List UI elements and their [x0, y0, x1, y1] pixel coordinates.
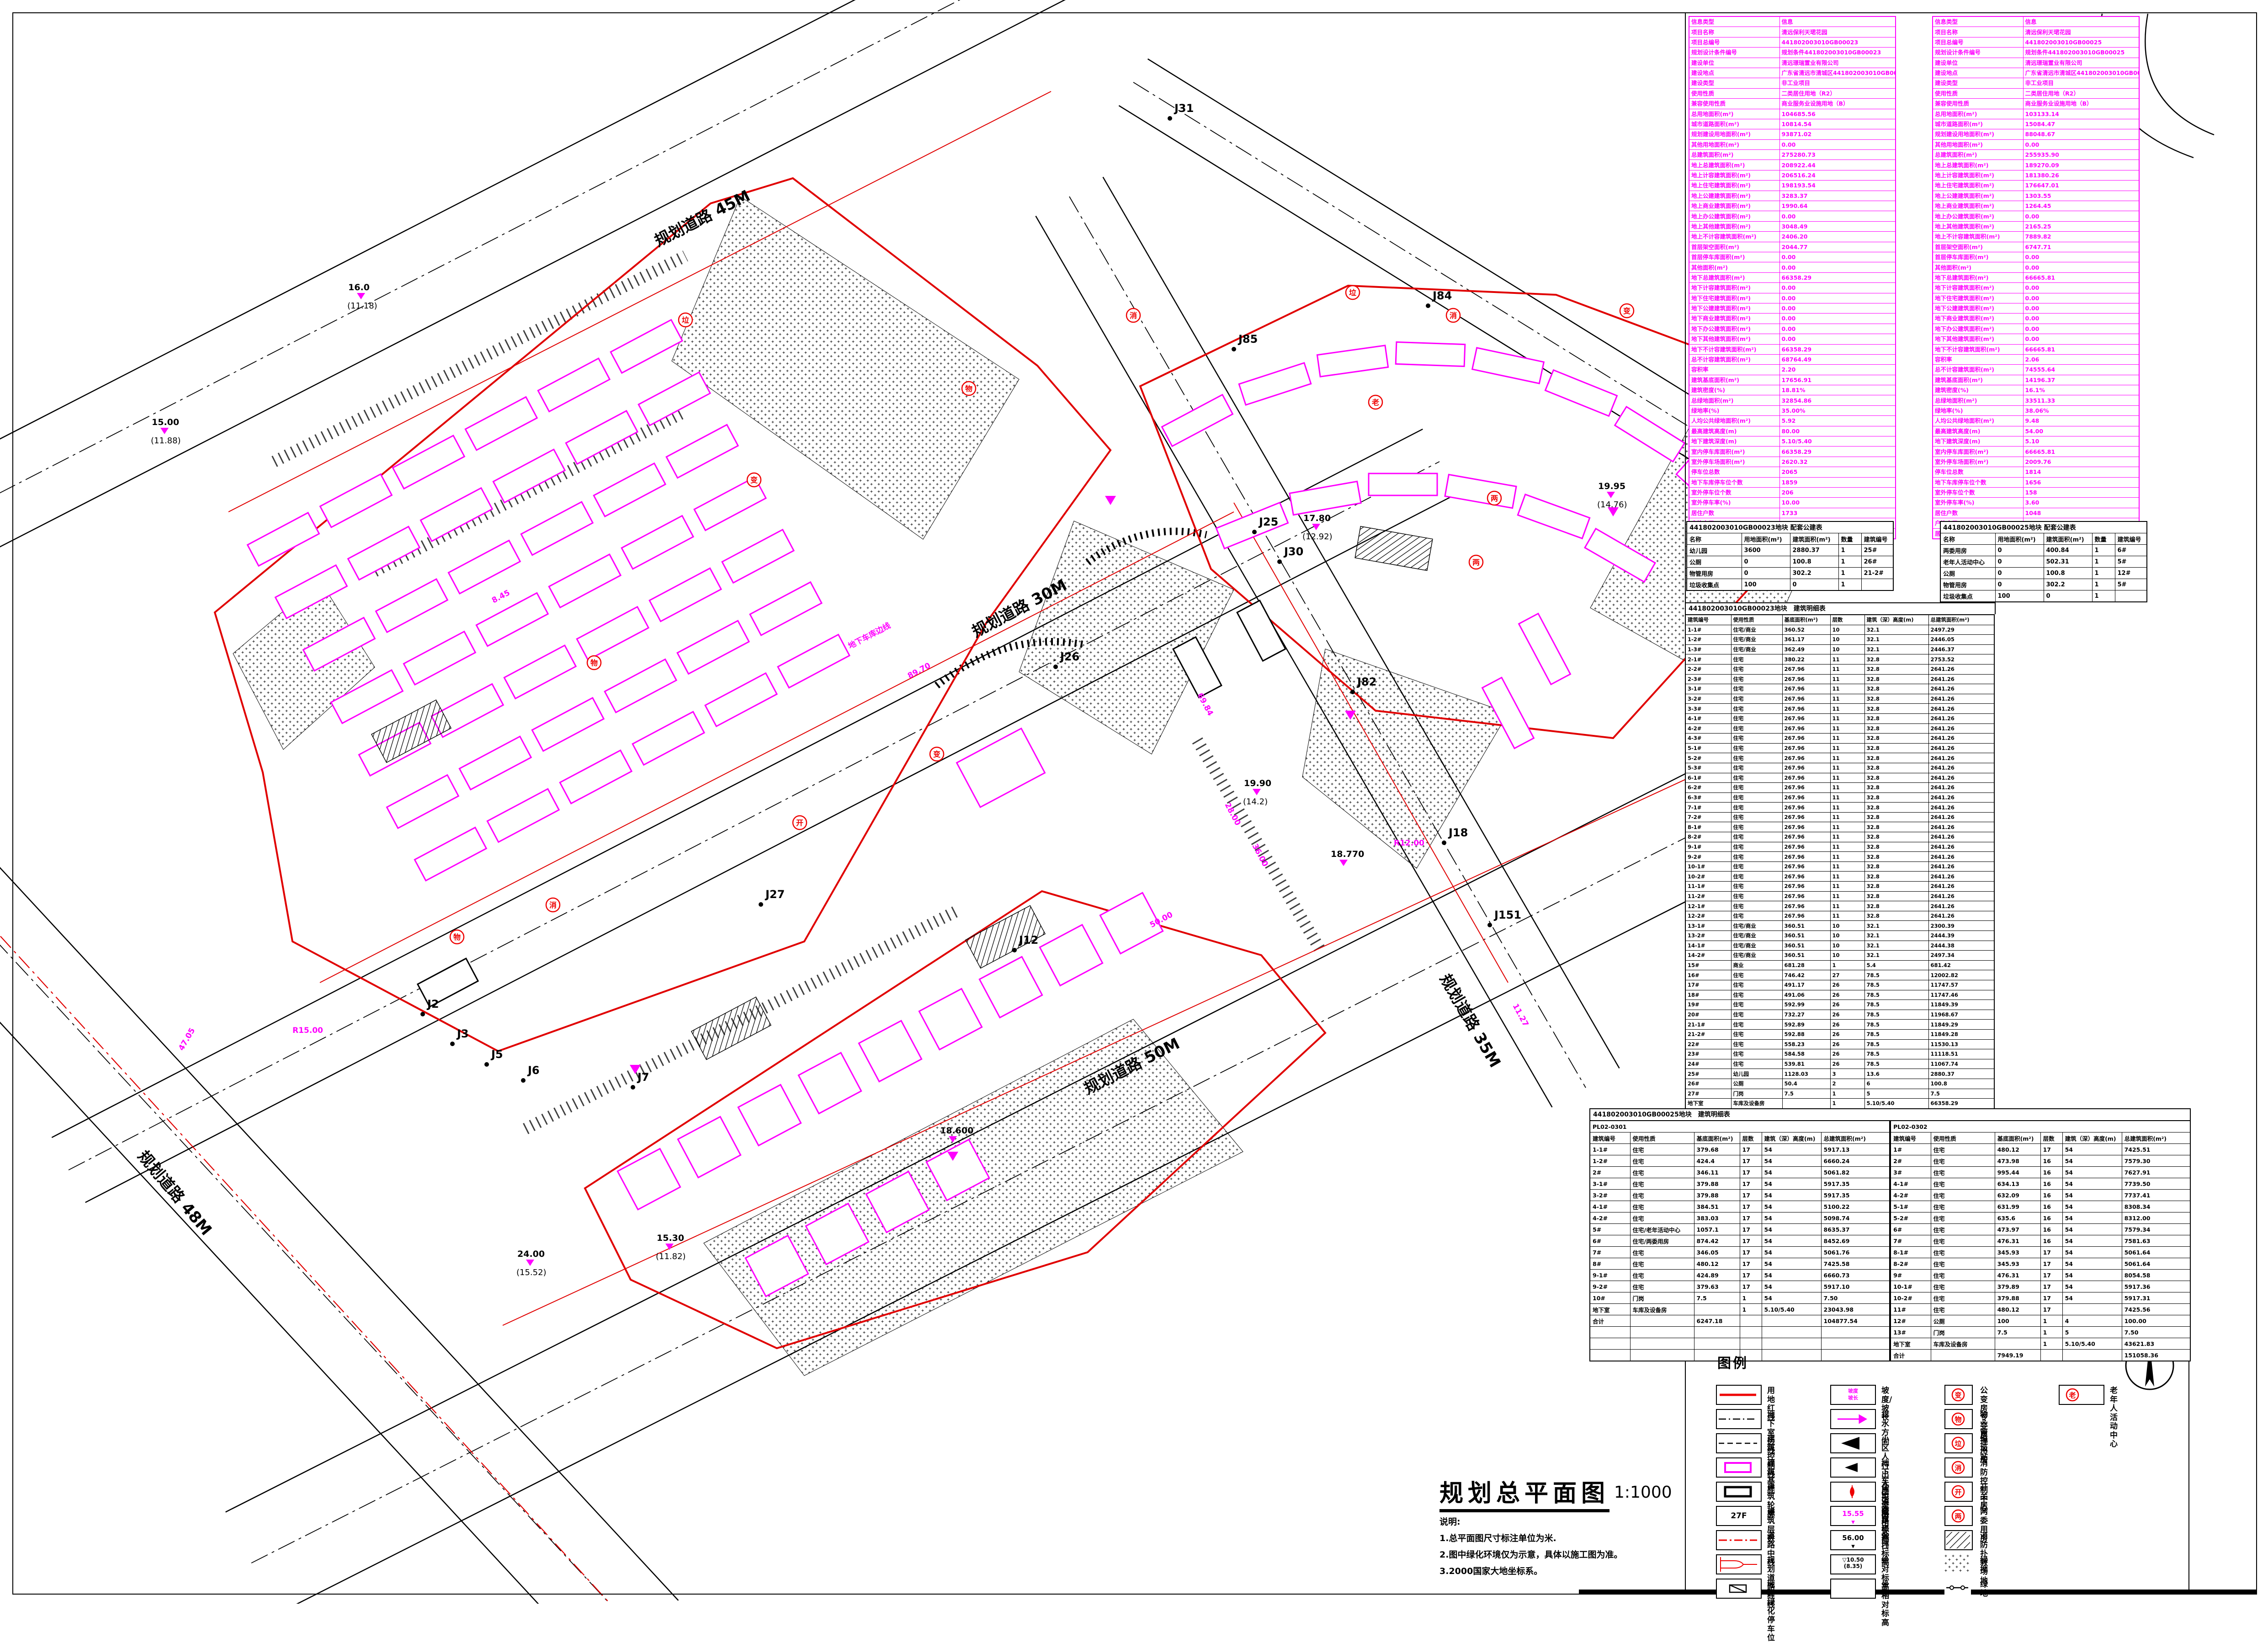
elevation-value: 19.90: [1244, 778, 1271, 788]
table-cell: 592.88: [1782, 1029, 1830, 1039]
legend-circ-icon: 变: [1944, 1385, 1973, 1405]
table-cell: 2165.25: [2023, 221, 2139, 231]
junction-label: J12: [1018, 934, 1038, 946]
table-cell: 2620.32: [1779, 457, 1896, 467]
dimension-label: R15.00: [292, 1026, 323, 1035]
table-cell: 54: [2062, 1224, 2122, 1235]
legend-m-rect-icon: [1716, 1457, 1762, 1478]
table-row: 2-1#住宅380.221132.82753.52: [1685, 654, 1994, 665]
table-row: 地下建筑深度(m)5.10: [1933, 436, 2139, 447]
table-cell: 267.96: [1782, 842, 1830, 852]
green-area: [1302, 649, 1508, 868]
building-footprint: [1472, 348, 1544, 383]
building-footprint: [677, 621, 749, 674]
table-cell: 0: [1995, 556, 2044, 568]
table-cell: 360.51: [1782, 931, 1830, 941]
table-cell: 车库及设备房: [1630, 1304, 1694, 1315]
table-cell: 54: [1762, 1167, 1821, 1178]
table-cell: 地上公建建筑面积(m²): [1689, 191, 1779, 201]
table-cell: 8452.69: [1821, 1235, 1890, 1247]
table-cell: 总绿地面积(m²): [1933, 395, 2023, 405]
table-cell: 7.5: [1694, 1292, 1740, 1304]
table-cell: 住宅/商业: [1731, 644, 1782, 654]
table-cell: 居住户数: [1689, 508, 1779, 518]
table-cell: 267.96: [1782, 832, 1830, 842]
table-cell: 1: [1838, 545, 1861, 556]
table-cell: 66358.29: [1779, 272, 1896, 282]
table-cell: 54: [1762, 1292, 1821, 1304]
legend: 图例 用地红线地下室边线建筑控制线建筑基底建筑轮廓27F建筑层数道路中线规划道路…: [1709, 1352, 2184, 1590]
table-cell: 54: [1762, 1224, 1821, 1235]
table-cell: 2641.26: [1928, 753, 1994, 763]
table-cell: 473.97: [1995, 1224, 2040, 1235]
table-cell: 32.1: [1864, 931, 1928, 941]
table-cell: 17: [1740, 1155, 1762, 1167]
table-cell: 5917.31: [2122, 1292, 2190, 1304]
table-row: 4-2#住宅383.0317545098.74: [1590, 1212, 1890, 1224]
table-cell: 住宅: [1731, 664, 1782, 674]
table-cell: 建筑基底面积(m²): [1689, 375, 1779, 385]
building-footprint: [248, 513, 319, 566]
table-cell: 2641.26: [1928, 901, 1994, 911]
table-cell: 13-1#: [1685, 921, 1731, 931]
table-cell: 8635.37: [1821, 1224, 1890, 1235]
table-cell: 0: [2044, 590, 2092, 602]
table-cell: 0: [1742, 568, 1790, 579]
table-cell: 住宅: [1931, 1247, 1995, 1258]
table-cell: 建设地点: [1933, 68, 2023, 78]
table-cell: 0: [1790, 579, 1838, 591]
table-cell: 物管用房: [1687, 568, 1742, 579]
table-cell: 建筑编号: [1590, 1133, 1630, 1144]
table-cell: 5061.64: [2122, 1258, 2190, 1270]
table-row: 2#住宅473.9816547579.30: [1891, 1155, 2190, 1167]
table-cell: 0.00: [1779, 293, 1896, 303]
table-cell: 32.8: [1864, 783, 1928, 793]
table-row: 4-1#住宅267.961132.82641.26: [1685, 713, 1994, 723]
table-row: 24#住宅539.812678.511067.74: [1685, 1059, 1994, 1069]
table-row: 3-1#住宅379.8817545917.35: [1590, 1178, 1890, 1190]
elevation-sub-value: (11.82): [656, 1252, 686, 1261]
table-cell: 10: [1830, 644, 1864, 654]
elevation-value: 18.600: [940, 1126, 973, 1136]
table-row: 建筑编号使用性质基底面积(m²)层数建筑（深）高度(m)总建筑面积(m²): [1891, 1133, 2190, 1144]
table-cell: 16: [2040, 1155, 2062, 1167]
table-cell: 11: [1830, 882, 1864, 892]
table-cell: 208922.44: [1779, 160, 1896, 170]
table-cell: 11: [1830, 713, 1864, 723]
table-cell: 2641.26: [1928, 792, 1994, 803]
table-cell: 地上公建建筑面积(m²): [1933, 191, 2023, 201]
table-cell: 绿地率(%): [1689, 405, 1779, 415]
table-cell: 0.00: [2023, 211, 2139, 221]
table-cell: 6#: [2115, 545, 2147, 556]
table-cell: 5.10/5.40: [1864, 1099, 1928, 1109]
table-cell: 379.63: [1694, 1281, 1740, 1292]
table-cell: 住宅: [1931, 1292, 1995, 1304]
table-cell: 54: [1762, 1155, 1821, 1167]
svg-text:开: 开: [1955, 1488, 1961, 1496]
table-cell: 7.5: [1782, 1089, 1830, 1099]
table-row: 地上办公建筑面积(m²)0.00: [1689, 211, 1896, 221]
elevation-marker-icon: [1339, 860, 1348, 866]
table-cell: 16: [2040, 1167, 2062, 1178]
table-row: 室外停车率(%)3.60: [1933, 498, 2139, 508]
table-cell: 10-1#: [1685, 861, 1731, 872]
table-cell: 17: [1740, 1247, 1762, 1258]
table-cell: 0.00: [1779, 314, 1896, 324]
table-cell: 用地面积(m²): [1995, 533, 2044, 545]
table-cell: 32.8: [1864, 753, 1928, 763]
table-cell: 住宅: [1931, 1212, 1995, 1224]
table-cell: 10: [1830, 951, 1864, 961]
table-cell: 66358.29: [1779, 344, 1896, 354]
svg-text:变: 变: [1623, 307, 1631, 315]
elevation-marker-icon: [1253, 789, 1261, 795]
table-cell: 7.50: [2122, 1327, 2190, 1338]
table-row: 总用地面积(m²)104685.56: [1689, 109, 1896, 119]
table-cell: 32.8: [1864, 861, 1928, 872]
table-cell: 12-2#: [1685, 911, 1731, 921]
table-cell: 1-1#: [1590, 1144, 1630, 1155]
table-cell: 地下住宅建筑面积(m²): [1689, 293, 1779, 303]
table-cell: 10-2#: [1891, 1292, 1931, 1304]
table-cell: 13#: [1891, 1327, 1931, 1338]
table-cell: 地下室: [1590, 1304, 1630, 1315]
table-cell: 停车位总数: [1689, 467, 1779, 477]
table-cell: 住宅: [1731, 882, 1782, 892]
table-cell: 10#: [1590, 1292, 1630, 1304]
table-cell: 26: [1830, 1000, 1864, 1010]
legend-circ-icon: 物: [1944, 1409, 1973, 1429]
table-cell: 室外停车位个数: [1933, 487, 2023, 497]
table-cell: 信息类型: [1933, 16, 2023, 27]
legend-line-dots-icon: [1944, 1579, 1971, 1597]
table-cell: 0.00: [1779, 334, 1896, 344]
table-cell: 181380.26: [2023, 170, 2139, 180]
table-cell: 5.10/5.40: [1762, 1304, 1821, 1315]
table-cell: 2.06: [2023, 354, 2139, 364]
table-row: 441802003010GB00025地块 配套公建表: [1940, 521, 2147, 533]
table-cell: 住宅: [1731, 713, 1782, 723]
table-cell: 17: [1740, 1212, 1762, 1224]
building-footprint: [1519, 614, 1571, 685]
table-row: 5-1#住宅631.9916548308.34: [1891, 1201, 2190, 1212]
legend-label: 坐标: [1881, 1580, 1889, 1598]
table-cell: 住宅: [1731, 1000, 1782, 1010]
table-cell: 635.6: [1995, 1212, 2040, 1224]
table-cell: 2300.39: [1928, 921, 1994, 931]
elevation-sub-value: (14.2): [1243, 797, 1268, 807]
table-cell: 基底面积(m²): [1995, 1133, 2040, 1144]
table-cell: 1: [2040, 1315, 2062, 1327]
table-cell: 人均公共绿地面积(m²): [1689, 416, 1779, 426]
table-cell: 总建筑面积(m²): [1933, 150, 2023, 160]
table-cell: 住宅: [1731, 654, 1782, 665]
table-cell: 26: [1830, 990, 1864, 1000]
table-cell: 32.1: [1864, 921, 1928, 931]
table-cell: 5917.36: [2122, 1281, 2190, 1292]
table-cell: 3-1#: [1685, 684, 1731, 694]
dimension-label: 89.70: [906, 661, 932, 681]
building-footprint: [611, 320, 682, 373]
table-cell: 住宅: [1931, 1178, 1995, 1190]
table-cell: 2641.26: [1928, 842, 1994, 852]
table-cell: 建设单位: [1689, 58, 1779, 68]
table-cell: 2641.26: [1928, 872, 1994, 882]
table-cell: 住宅: [1630, 1201, 1694, 1212]
junction-label: J7: [637, 1071, 649, 1084]
table-row: 地下住宅建筑面积(m²)0.00: [1933, 293, 2139, 303]
table-row: 12-2#住宅267.961132.82641.26: [1685, 911, 1994, 921]
fire-rescue-area: [691, 997, 771, 1060]
table-cell: 名称: [1687, 533, 1742, 545]
building-footprint: [1317, 346, 1388, 377]
legend-abs-rel-icon: ▽10.50(8.35): [1830, 1554, 1876, 1574]
table-cell: 住宅: [1931, 1190, 1995, 1201]
table-cell: 建筑面积(m²): [1790, 533, 1838, 545]
building-footprint: [521, 502, 593, 555]
table-cell: 总建筑面积(m²): [1821, 1133, 1890, 1144]
legend-parking-icon: [1716, 1579, 1762, 1599]
table-cell: 80.00: [1779, 426, 1896, 436]
table-cell: 78.5: [1864, 990, 1928, 1000]
table-row: 13-2#住宅/商业360.511032.12444.39: [1685, 931, 1994, 941]
table-row: 23#住宅584.582678.511118.51: [1685, 1049, 1994, 1059]
table-cell: 住宅: [1931, 1224, 1995, 1235]
table-cell: 74555.64: [2023, 365, 2139, 375]
table-cell: 总不计容建筑面积(m²): [1689, 354, 1779, 364]
table-cell: 住宅/商业: [1731, 951, 1782, 961]
table-cell: 8-2#: [1891, 1258, 1931, 1270]
table-row: 9-1#住宅424.8917546660.73: [1590, 1270, 1890, 1281]
table-cell: 54: [2062, 1144, 2122, 1155]
table-cell: 基底面积(m²): [1694, 1133, 1740, 1144]
table-cell: 5061.82: [1821, 1167, 1890, 1178]
table-row: 合计6247.18104877.54: [1590, 1315, 1890, 1327]
table-row: 5-2#住宅267.961132.82641.26: [1685, 753, 1994, 763]
table-cell: 建筑编号: [1685, 615, 1731, 625]
table-cell: 住宅: [1931, 1304, 1995, 1315]
table-cell: 1-2#: [1685, 635, 1731, 645]
junction-label: J82: [1356, 675, 1376, 688]
junction-label: J25: [1258, 516, 1278, 528]
building-footprint: [487, 789, 559, 842]
table-cell: 8312.00: [2122, 1212, 2190, 1224]
table-row: 地上住宅建筑面积(m²)176647.01: [1933, 181, 2139, 191]
table-cell: 1656: [2023, 477, 2139, 487]
table-cell: 26: [1830, 1010, 1864, 1020]
table-cell: 5: [2062, 1327, 2122, 1338]
table-cell: 5061.76: [1821, 1247, 1890, 1258]
table-cell: 2#: [1590, 1167, 1630, 1178]
table-cell: 383.03: [1694, 1212, 1740, 1224]
table-cell: 0.00: [2023, 293, 2139, 303]
table-cell: 总用地面积(m²): [1933, 109, 2023, 119]
table-cell: 5917.35: [1821, 1190, 1890, 1201]
table-cell: 995.44: [1995, 1167, 2040, 1178]
table-cell: 公厕: [1940, 568, 1995, 579]
table-cell: 558.23: [1782, 1039, 1830, 1049]
table-cell: 2641.26: [1928, 803, 1994, 813]
table-row: 1-2#住宅/商业361.171032.12446.05: [1685, 635, 1994, 645]
building-footprint: [393, 436, 464, 489]
table-cell: 592.89: [1782, 1020, 1830, 1030]
table-cell: 32.8: [1864, 684, 1928, 694]
table-cell: 建设类型: [1933, 78, 2023, 88]
table-row: 6-3#住宅267.961132.82641.26: [1685, 792, 1994, 803]
table-cell: 住宅: [1731, 803, 1782, 813]
svg-text:老: 老: [1371, 398, 1379, 407]
table-cell: 用地面积(m²): [1742, 533, 1790, 545]
table-cell: 地上住宅建筑面积(m²): [1689, 181, 1779, 191]
table-cell: 9#: [1891, 1270, 1931, 1281]
table-cell: 11: [1830, 753, 1864, 763]
table-cell: 78.5: [1864, 1029, 1928, 1039]
table-row: 地下其他建筑面积(m²)0.00: [1689, 334, 1896, 344]
dimension-label: 地下车库边线: [846, 621, 892, 651]
table-cell: 1990.64: [1779, 201, 1896, 211]
svg-text:消: 消: [549, 901, 557, 909]
table-row: 名称用地面积(m²)建筑面积(m²)数量建筑编号: [1940, 533, 2147, 545]
table-cell: 5.10/5.40: [2062, 1338, 2122, 1350]
table-row: 8-2#住宅345.9317545061.64: [1891, 1258, 2190, 1270]
table-cell: 480.12: [1995, 1144, 2040, 1155]
table-cell: 54: [2062, 1258, 2122, 1270]
legend-road-elev-icon: 15.55▾: [1830, 1506, 1876, 1526]
table-row: 7#住宅346.0517545061.76: [1590, 1247, 1890, 1258]
table-cell: 住宅: [1630, 1270, 1694, 1281]
table-row: 5-2#住宅635.616548312.00: [1891, 1212, 2190, 1224]
table-row: 项目名称清远保利天珺花园: [1689, 27, 1896, 37]
table-cell: 54: [1762, 1247, 1821, 1258]
table-cell: 267.96: [1782, 901, 1830, 911]
legend-label: 垃圾站: [1980, 1435, 1988, 1462]
table-row: 26#公厕50.426100.8: [1685, 1079, 1994, 1089]
building-footprint: [1290, 481, 1361, 515]
table-cell: 17: [1740, 1224, 1762, 1235]
junction-label: J18: [1448, 826, 1468, 839]
table-cell: 27: [1830, 970, 1864, 980]
table-cell: 7739.50: [2122, 1178, 2190, 1190]
table-cell: 11: [1830, 812, 1864, 822]
note-3: 3.2000国家大地坐标系。: [1439, 1564, 1686, 1577]
dimension-label: R12.00: [1394, 839, 1424, 848]
building-detail-table-gb00025: 441802003010GB00025地块 建筑明细表PL02-0301建筑编号…: [1589, 1108, 2189, 1361]
entrance-icon: [1105, 496, 1116, 505]
table-row: 居住户数1733: [1689, 508, 1896, 518]
table-cell: 17: [1740, 1235, 1762, 1247]
dimension-label: 69.84: [1195, 691, 1215, 718]
table-row: 地上总建筑面积(m²)208922.44: [1689, 160, 1896, 170]
table-cell: 使用性质: [1933, 88, 2023, 98]
table-cell: 住宅: [1731, 852, 1782, 862]
building-footprint: [1369, 473, 1437, 495]
table-cell: 189270.09: [2023, 160, 2139, 170]
table-cell: 广东省清远市清城区441802003010GB00023地块: [1779, 68, 1896, 78]
table-cell: 32.8: [1864, 763, 1928, 773]
table-cell: 0.00: [2023, 334, 2139, 344]
table-row: 最高建筑高度(m)54.00: [1933, 426, 2139, 436]
fire-rescue-area: [1355, 526, 1433, 571]
table-row: 总建筑面积(m²)255935.90: [1933, 150, 2139, 160]
table-cell: 门岗: [1731, 1089, 1782, 1099]
table-cell: 6-3#: [1685, 792, 1731, 803]
table-cell: 地下总建筑面积(m²): [1933, 272, 2023, 282]
table-cell: 93871.02: [1779, 129, 1896, 139]
table-cell: 88048.67: [2023, 129, 2139, 139]
table-row: 地下其他建筑面积(m²)0.00: [1933, 334, 2139, 344]
table-cell: 17: [1740, 1270, 1762, 1281]
table-cell: 地下其他建筑面积(m²): [1689, 334, 1779, 344]
table-cell: 6-1#: [1685, 773, 1731, 783]
table-cell: [1762, 1327, 1821, 1338]
table-row: 地上不计容建筑面积(m²)7889.82: [1933, 232, 2139, 242]
table-cell: 住宅: [1731, 891, 1782, 901]
table-cell: 规划设计条件编号: [1689, 48, 1779, 58]
legend-label: 老年人活动中心: [2110, 1387, 2118, 1449]
table-row: 人均公共绿地面积(m²)5.92: [1689, 416, 1896, 426]
table-cell: 50.4: [1782, 1079, 1830, 1089]
table-cell: 54: [1762, 1235, 1821, 1247]
table-cell: 建筑编号: [2115, 533, 2147, 545]
table-cell: 32.8: [1864, 803, 1928, 813]
table-row: 12-1#住宅267.961132.82641.26: [1685, 901, 1994, 911]
table-cell: 32.1: [1864, 635, 1928, 645]
table-cell: 7.50: [1821, 1292, 1890, 1304]
table-row: 9-2#住宅379.6317545917.10: [1590, 1281, 1890, 1292]
building-footprint: [632, 712, 704, 765]
table-cell: 874.42: [1694, 1235, 1740, 1247]
table-row: 地上总建筑面积(m²)189270.09: [1933, 160, 2139, 170]
table-row: 6-2#住宅267.961132.82641.26: [1685, 783, 1994, 793]
table-cell: 1: [2092, 556, 2115, 568]
building-footprint: [957, 728, 1045, 807]
table-row: 总用地面积(m²)103133.14: [1933, 109, 2139, 119]
table-row: 8-2#住宅267.961132.82641.26: [1685, 832, 1994, 842]
table-cell: 267.96: [1782, 861, 1830, 872]
table-cell: 9-2#: [1590, 1281, 1630, 1292]
table-cell: 11747.46: [1928, 990, 1994, 1000]
table-row: [1590, 1327, 1890, 1338]
road-label: 规划道路 48M: [134, 1147, 215, 1239]
svg-text:两: 两: [1491, 494, 1498, 503]
table-cell: 78.5: [1864, 1059, 1928, 1069]
table-cell: 建设类型: [1689, 78, 1779, 88]
table-cell: 其他面积(m²): [1689, 262, 1779, 272]
table-cell: 12#: [2115, 568, 2147, 579]
table-cell: 住宅: [1731, 990, 1782, 1000]
table-cell: 11: [1830, 783, 1864, 793]
table-row: 4-3#住宅267.961132.82641.26: [1685, 734, 1994, 744]
table-cell: 267.96: [1782, 753, 1830, 763]
table-cell: 26#: [1861, 556, 1893, 568]
table-cell: 地上办公建筑面积(m²): [1689, 211, 1779, 221]
table-cell: 32.8: [1864, 872, 1928, 882]
legend-floors-icon: 27F: [1716, 1506, 1762, 1526]
table-row: 其他面积(m²)0.00: [1933, 262, 2139, 272]
table-row: 14-1#住宅/商业360.511032.12444.38: [1685, 941, 1994, 951]
table-cell: 6660.24: [1821, 1155, 1890, 1167]
table-cell: 4-3#: [1685, 734, 1731, 744]
table-cell: 2497.34: [1928, 951, 1994, 961]
table-cell: 33511.33: [2023, 395, 2139, 405]
table-cell: 1-2#: [1590, 1155, 1630, 1167]
table-cell: 2#: [1891, 1155, 1931, 1167]
table-cell: 5.4: [1864, 960, 1928, 970]
table-cell: 总建筑面积(m²): [1689, 150, 1779, 160]
table-cell: 地下公建建筑面积(m²): [1689, 303, 1779, 313]
